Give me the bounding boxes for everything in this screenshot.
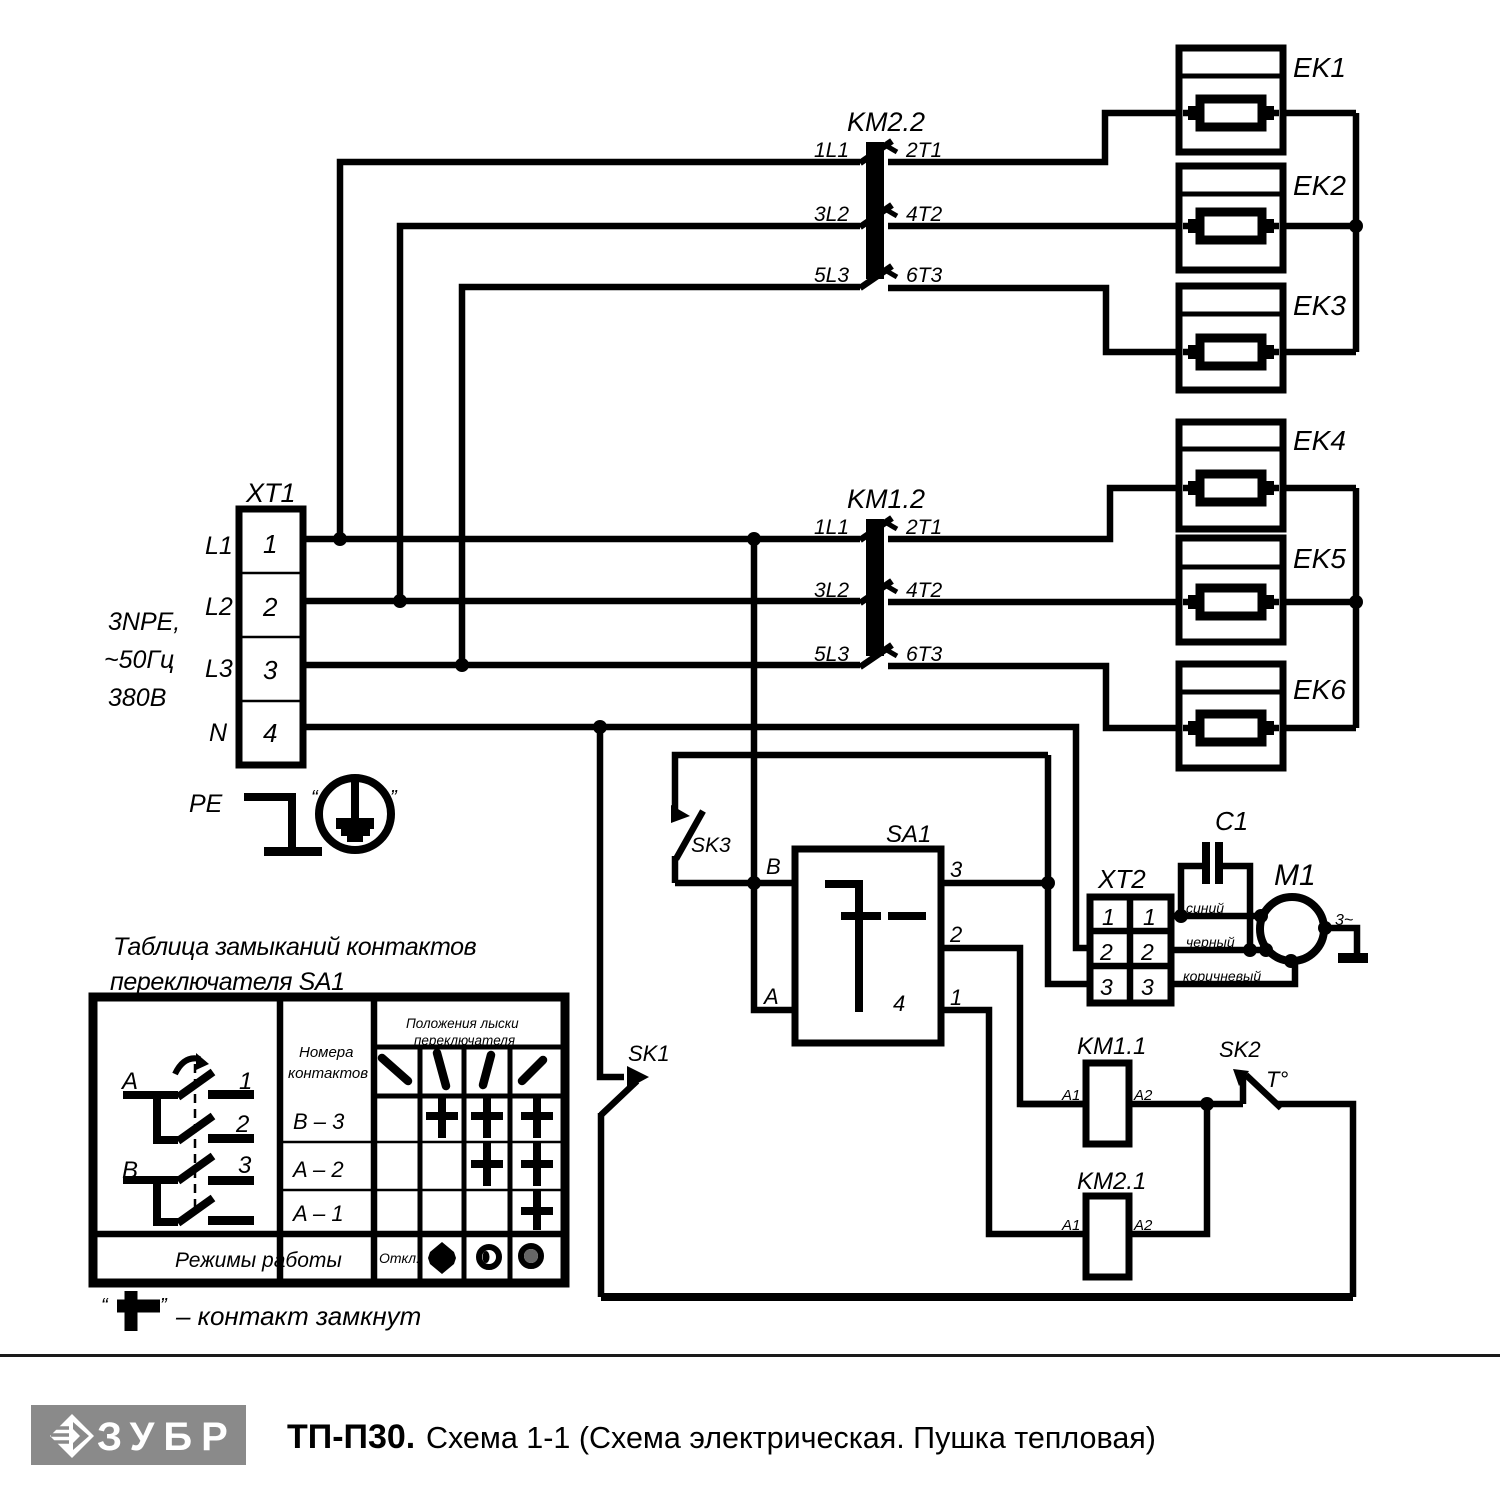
svg-text:2T1: 2T1 [905, 516, 942, 539]
svg-text:KM1.1: KM1.1 [1077, 1033, 1146, 1060]
svg-text:A: A [762, 984, 779, 1009]
svg-text:Положения лыски: Положения лыски [406, 1016, 519, 1031]
svg-text:Номера: Номера [299, 1044, 354, 1061]
svg-text:ЗУБР: ЗУБР [97, 1415, 237, 1459]
svg-text:EK2: EK2 [1293, 170, 1346, 201]
svg-text:5L3: 5L3 [814, 264, 849, 287]
svg-text:4: 4 [893, 991, 905, 1016]
svg-text:1: 1 [239, 1068, 252, 1095]
svg-text:SA1: SA1 [886, 821, 931, 848]
svg-text:переключателя SA1: переключателя SA1 [110, 968, 345, 996]
svg-text:5L3: 5L3 [814, 643, 849, 666]
svg-text:KM2.1: KM2.1 [1077, 1168, 1146, 1195]
svg-text:коричневый: коричневый [1183, 968, 1261, 984]
svg-text:3: 3 [238, 1152, 252, 1179]
svg-text:~50Гц: ~50Гц [104, 646, 174, 674]
svg-text:C1: C1 [1215, 806, 1248, 836]
svg-text:A – 1: A – 1 [291, 1201, 344, 1226]
svg-text:XT1: XT1 [245, 478, 296, 508]
svg-text:A2: A2 [1133, 1087, 1153, 1104]
svg-text:XT2: XT2 [1097, 864, 1146, 894]
svg-text:PE: PE [189, 790, 223, 818]
svg-text:контактов: контактов [288, 1065, 368, 1082]
svg-text:T°: T° [1266, 1067, 1288, 1092]
svg-text:EK3: EK3 [1293, 290, 1346, 321]
svg-text:1: 1 [1143, 904, 1156, 930]
svg-text:KM2.2: KM2.2 [847, 107, 925, 137]
svg-text:L1: L1 [205, 532, 233, 560]
svg-text:2T1: 2T1 [905, 139, 942, 162]
svg-text:– контакт замкнут: – контакт замкнут [175, 1301, 421, 1331]
svg-text:EK4: EK4 [1293, 425, 1346, 456]
svg-text:переключателя: переключателя [414, 1033, 515, 1048]
svg-text:2: 2 [949, 922, 962, 947]
svg-text:1: 1 [1102, 904, 1115, 930]
svg-text:EK5: EK5 [1293, 543, 1346, 574]
svg-text:синий: синий [1186, 900, 1224, 916]
svg-text:SK2: SK2 [1219, 1037, 1261, 1062]
svg-text:B – 3: B – 3 [293, 1109, 345, 1134]
svg-text:1: 1 [263, 529, 277, 559]
svg-text:A1: A1 [1061, 1217, 1080, 1234]
svg-text:6T3: 6T3 [906, 643, 943, 666]
svg-text:SK3: SK3 [691, 834, 731, 857]
svg-text:6T3: 6T3 [906, 264, 943, 287]
svg-text:380В: 380В [108, 684, 166, 712]
svg-text:A – 2: A – 2 [291, 1157, 344, 1182]
svg-text:N: N [209, 719, 228, 747]
svg-text:2: 2 [262, 592, 278, 622]
svg-text:B: B [766, 854, 781, 879]
svg-text:3: 3 [950, 857, 963, 882]
svg-text:черный: черный [1186, 934, 1235, 950]
svg-text:3NPE,: 3NPE, [108, 608, 180, 636]
svg-text:Таблица замыканий контактов: Таблица замыканий контактов [113, 933, 477, 961]
svg-text:4T2: 4T2 [906, 203, 943, 226]
svg-text:1L1: 1L1 [814, 139, 849, 162]
svg-text:A: A [120, 1068, 138, 1095]
svg-text:A1: A1 [1061, 1087, 1080, 1104]
svg-text:ТП-П30.: ТП-П30. [287, 1418, 415, 1456]
svg-text:3: 3 [263, 655, 278, 685]
svg-text:3L2: 3L2 [814, 579, 849, 602]
svg-text:4: 4 [263, 718, 277, 748]
svg-text:3: 3 [1100, 974, 1113, 1000]
svg-text:A2: A2 [1133, 1217, 1153, 1234]
svg-text:1: 1 [950, 985, 962, 1010]
svg-text:Схема 1-1 (Схема электрическая: Схема 1-1 (Схема электрическая. Пушка те… [426, 1421, 1156, 1455]
svg-text:3~: 3~ [1335, 912, 1353, 929]
svg-text:Режимы работы: Режимы работы [175, 1249, 342, 1272]
svg-text:SK1: SK1 [628, 1041, 670, 1066]
svg-text:2: 2 [1140, 939, 1154, 965]
svg-text:1L1: 1L1 [814, 516, 849, 539]
svg-text:EK6: EK6 [1293, 674, 1346, 705]
svg-text:Откл.: Откл. [379, 1250, 420, 1266]
svg-text:3: 3 [1141, 974, 1154, 1000]
svg-text:L3: L3 [205, 655, 233, 683]
svg-text:EK1: EK1 [1293, 52, 1346, 83]
svg-text:2: 2 [1099, 939, 1113, 965]
svg-text:L2: L2 [205, 593, 233, 621]
svg-text:2: 2 [235, 1111, 249, 1138]
svg-text:M1: M1 [1274, 859, 1316, 892]
svg-text:4T2: 4T2 [906, 579, 943, 602]
svg-text:3L2: 3L2 [814, 203, 849, 226]
svg-text:KM1.2: KM1.2 [847, 484, 925, 514]
